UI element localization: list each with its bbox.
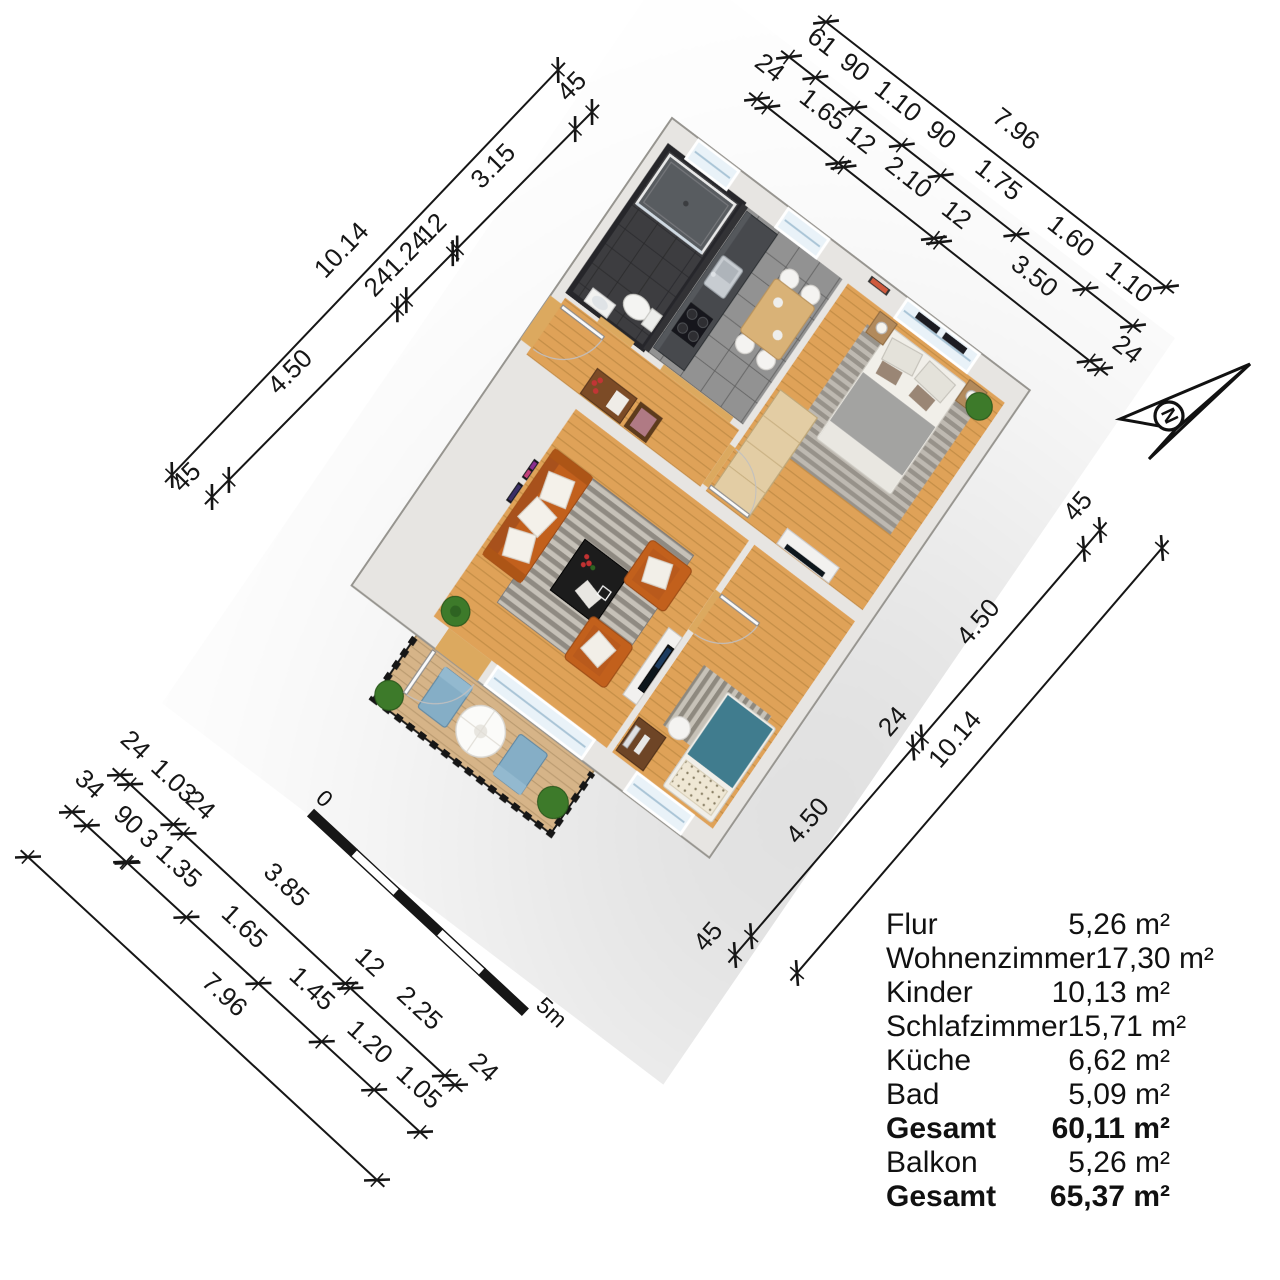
dimension-chain-sw-outer: 7.96 xyxy=(15,850,390,1187)
dimension-label: 12 xyxy=(349,941,391,983)
dimension-label: 1.10 xyxy=(1100,254,1158,309)
dimension-label: 90 xyxy=(835,46,876,87)
dimension-label: 7.96 xyxy=(196,966,254,1022)
dimension-label: 3.15 xyxy=(464,137,521,194)
room-area: 6,62 m² xyxy=(1068,1044,1170,1078)
floorplan-sheet: 10.14454.50241.24123.15457.9661901.10901… xyxy=(0,0,1280,1280)
room-area: 10,13 m² xyxy=(1052,976,1170,1010)
dimension-label: 7.96 xyxy=(987,101,1045,156)
north-arrow-shape xyxy=(1120,364,1250,459)
area-table-row: Balkon5,26 m² xyxy=(886,1146,1170,1180)
dimension-label: 45 xyxy=(687,915,729,956)
dimension-label: 1.10 xyxy=(869,73,927,128)
dimension-label: 2.25 xyxy=(391,979,449,1035)
scale-bar: 05m xyxy=(303,784,573,1039)
dimension-label: 3.85 xyxy=(258,856,316,912)
area-table-row: Kinder10,13 m² xyxy=(886,976,1170,1010)
area-table-row: Schlafzimmer15,71 m² xyxy=(886,1010,1170,1044)
dimension-label: 1.60 xyxy=(1042,208,1100,263)
dimension-label: 1.20 xyxy=(342,1013,400,1069)
room-name: Balkon xyxy=(886,1146,978,1180)
area-table-row: Flur5,26 m² xyxy=(886,908,1170,942)
dimension-label: 4.50 xyxy=(261,343,318,400)
room-area: 15,71 m² xyxy=(1068,1010,1186,1044)
room-name: Kinder xyxy=(886,976,973,1010)
room-name: Gesamt xyxy=(886,1112,996,1146)
scale-bar-group: 05m xyxy=(303,784,573,1039)
room-name: Gesamt xyxy=(886,1180,996,1214)
dimension-label: 24 xyxy=(872,700,914,741)
area-table-row: Küche6,62 m² xyxy=(886,1044,1170,1078)
dimension-label: 4.50 xyxy=(950,593,1006,651)
dimension-label: 24 xyxy=(115,724,157,766)
dimension-label: 1.45 xyxy=(284,960,342,1016)
dimension-label: 1.05 xyxy=(391,1058,449,1114)
dimension-label: 1.65 xyxy=(794,82,852,137)
room-name: Flur xyxy=(886,908,938,942)
north-arrow: N xyxy=(1120,364,1250,459)
dimension-label: 90 xyxy=(921,114,962,155)
dimension-label: 1.35 xyxy=(150,838,208,894)
area-table-row: Gesamt60,11 m² xyxy=(886,1112,1170,1146)
dimension-label: 3.50 xyxy=(1006,248,1064,303)
dimension-label: 2.10 xyxy=(880,149,938,204)
area-table-row: Wohnenzimmer17,30 m² xyxy=(886,942,1170,976)
scale-zero-label: 0 xyxy=(311,784,338,812)
area-table-row: Bad5,09 m² xyxy=(886,1078,1170,1112)
room-name: Schlafzimmer xyxy=(886,1010,1068,1044)
room-name: Bad xyxy=(886,1078,939,1112)
scale-bar-segment xyxy=(436,929,485,975)
room-name: Küche xyxy=(886,1044,971,1078)
scale-bar-segment xyxy=(479,969,528,1015)
area-table: Flur5,26 m²Wohnenzimmer17,30 m²Kinder10,… xyxy=(886,908,1170,1214)
area-table-row: Gesamt65,37 m² xyxy=(886,1180,1170,1214)
room-area: 17,30 m² xyxy=(1096,942,1214,976)
dimension-chain-sw-inner: 241.03243.85122.2524 xyxy=(107,724,505,1092)
dimension-label: 4.50 xyxy=(779,791,835,849)
room-area: 5,26 m² xyxy=(1068,1146,1170,1180)
dimension-label: 24 xyxy=(463,1046,505,1088)
dimension-label: 1.65 xyxy=(216,898,274,954)
room-area: 65,37 m² xyxy=(1050,1180,1170,1214)
dimension-label: 61 xyxy=(802,21,843,62)
scale-bar-segment xyxy=(351,849,400,895)
room-area: 5,09 m² xyxy=(1068,1078,1170,1112)
dimension-label: 34 xyxy=(69,763,111,805)
dimension-chain-sw-mid: 349031.351.651.451.201.05 xyxy=(59,763,448,1139)
room-area: 60,11 m² xyxy=(1052,1112,1170,1146)
scale-end-label: 5m xyxy=(531,992,572,1033)
scale-bar-segment xyxy=(308,810,357,856)
scale-bar-segment xyxy=(393,889,442,935)
room-area: 5,26 m² xyxy=(1068,908,1170,942)
dimension-label: 45 xyxy=(1056,485,1098,526)
dimension-label: 24 xyxy=(1107,328,1148,369)
room-name: Wohnenzimmer xyxy=(886,942,1096,976)
dimension-label: 1.75 xyxy=(970,152,1028,207)
